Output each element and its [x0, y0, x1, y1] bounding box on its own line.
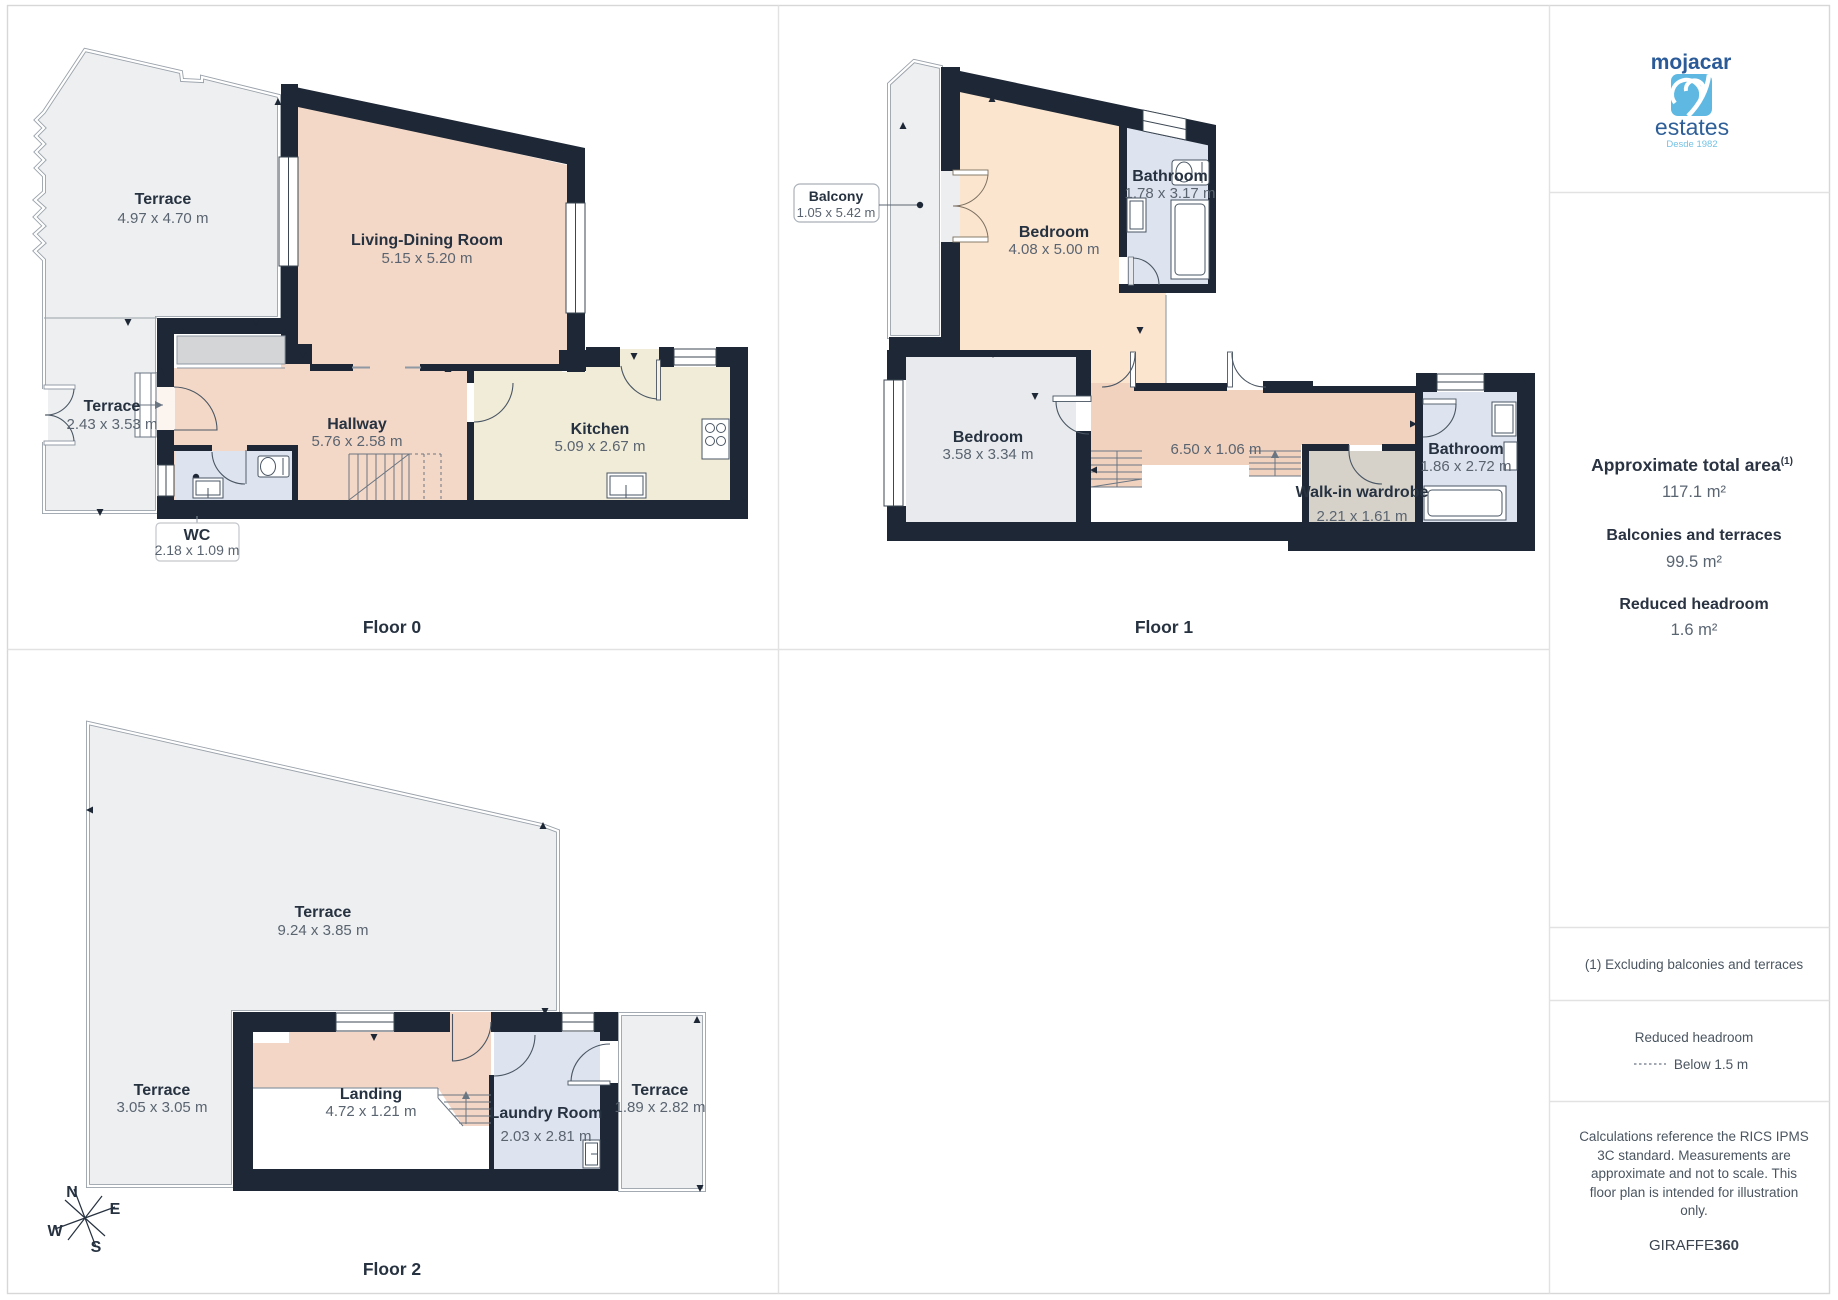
svg-text:S: S [91, 1239, 102, 1256]
svg-text:2.21 x 1.61 m: 2.21 x 1.61 m [1317, 508, 1408, 525]
svg-text:5.76 x 2.58 m: 5.76 x 2.58 m [312, 433, 403, 450]
svg-text:2.03 x 2.81 m: 2.03 x 2.81 m [501, 1128, 592, 1145]
svg-text:99.5 m²: 99.5 m² [1666, 553, 1722, 571]
svg-text:approximate and not to scale.: approximate and not to scale. This [1591, 1166, 1797, 1181]
svg-text:floor plan is intended for ill: floor plan is intended for illustration [1590, 1185, 1799, 1200]
svg-text:Bedroom: Bedroom [953, 429, 1023, 446]
svg-text:estates: estates [1655, 114, 1729, 140]
svg-text:1.6 m²: 1.6 m² [1671, 621, 1718, 639]
svg-text:Bathroom: Bathroom [1428, 441, 1504, 458]
svg-text:1.86 x 2.72 m: 1.86 x 2.72 m [1421, 458, 1512, 475]
svg-text:Walk-in wardrobe: Walk-in wardrobe [1296, 484, 1429, 501]
svg-text:1.89 x 2.82 m: 1.89 x 2.82 m [615, 1099, 706, 1116]
svg-text:mojacar: mojacar [1651, 51, 1732, 74]
svg-text:Terrace: Terrace [84, 398, 141, 415]
svg-text:Terrace: Terrace [632, 1082, 689, 1099]
svg-text:5.09 x 2.67 m: 5.09 x 2.67 m [555, 438, 646, 455]
svg-text:Below 1.5 m: Below 1.5 m [1674, 1057, 1748, 1072]
svg-text:Living-Dining Room: Living-Dining Room [351, 232, 503, 249]
svg-text:3.58 x 3.34 m: 3.58 x 3.34 m [943, 446, 1034, 463]
svg-text:N: N [66, 1184, 78, 1201]
svg-text:6.50 x 1.06 m: 6.50 x 1.06 m [1171, 441, 1262, 458]
svg-text:Reduced headroom: Reduced headroom [1635, 1030, 1754, 1045]
svg-text:Terrace: Terrace [134, 1082, 191, 1099]
svg-text:Reduced headroom: Reduced headroom [1619, 596, 1768, 613]
svg-text:Kitchen: Kitchen [571, 421, 630, 438]
svg-text:Laundry Room: Laundry Room [490, 1105, 603, 1122]
svg-text:Bathroom: Bathroom [1132, 168, 1208, 185]
svg-text:2.18 x 1.09 m: 2.18 x 1.09 m [155, 542, 240, 558]
svg-text:Landing: Landing [340, 1086, 402, 1103]
svg-text:Balcony: Balcony [809, 188, 864, 204]
svg-text:Desde 1982: Desde 1982 [1666, 139, 1717, 150]
svg-text:Bedroom: Bedroom [1019, 224, 1089, 241]
svg-text:4.72 x 1.21 m: 4.72 x 1.21 m [326, 1103, 417, 1120]
svg-text:Floor 2: Floor 2 [363, 1259, 422, 1279]
svg-text:GIRAFFE360: GIRAFFE360 [1649, 1237, 1739, 1254]
svg-text:3C standard. Measurements are: 3C standard. Measurements are [1597, 1148, 1791, 1163]
svg-text:E: E [110, 1201, 121, 1218]
svg-text:9.24 x 3.85 m: 9.24 x 3.85 m [278, 922, 369, 939]
svg-text:3.05 x 3.05 m: 3.05 x 3.05 m [117, 1099, 208, 1116]
svg-text:1.78 x 3.17 m: 1.78 x 3.17 m [1125, 185, 1216, 202]
svg-text:1.05 x 5.42 m: 1.05 x 5.42 m [797, 205, 876, 220]
svg-text:Terrace: Terrace [135, 191, 192, 208]
svg-text:Hallway: Hallway [327, 416, 387, 433]
svg-text:4.08 x 5.00 m: 4.08 x 5.00 m [1009, 241, 1100, 258]
svg-text:Calculations reference the RIC: Calculations reference the RICS IPMS [1579, 1129, 1809, 1144]
svg-text:Floor 0: Floor 0 [363, 617, 422, 637]
svg-text:Approximate total area(1): Approximate total area(1) [1591, 455, 1793, 475]
svg-text:117.1 m²: 117.1 m² [1662, 483, 1726, 501]
svg-text:Terrace: Terrace [295, 904, 352, 921]
svg-text:5.15 x 5.20 m: 5.15 x 5.20 m [382, 250, 473, 267]
svg-text:only.: only. [1680, 1203, 1708, 1218]
svg-text:4.97 x 4.70 m: 4.97 x 4.70 m [118, 210, 209, 227]
svg-text:(1) Excluding balconies and te: (1) Excluding balconies and terraces [1585, 957, 1804, 972]
svg-text:Floor 1: Floor 1 [1135, 617, 1194, 637]
svg-text:Balconies and terraces: Balconies and terraces [1606, 527, 1781, 544]
svg-text:W: W [47, 1223, 63, 1240]
svg-text:2.43 x 3.53 m: 2.43 x 3.53 m [67, 416, 158, 433]
